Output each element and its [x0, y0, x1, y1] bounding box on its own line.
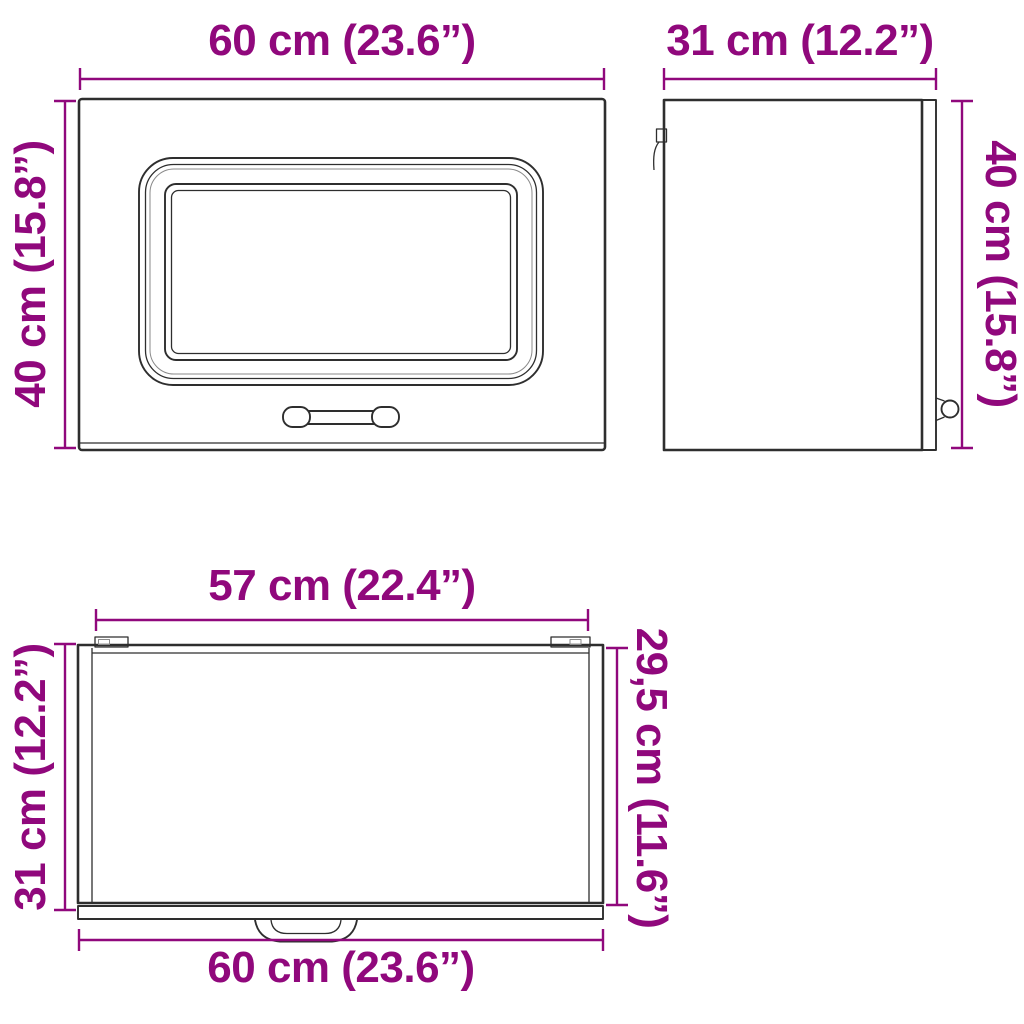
front-view [79, 99, 605, 450]
top-inner-width-label: 57 cm (22.4”) [208, 564, 475, 608]
side-door-panel [922, 100, 936, 450]
diagram-line-art [0, 0, 1024, 1024]
front-height-dimension-line [54, 101, 76, 448]
side-height-label: 40 cm (15.8”) [978, 140, 1022, 407]
front-door-frame-line [146, 165, 537, 379]
top-cabinet-walls [92, 648, 589, 903]
side-hinge-arm [654, 142, 659, 170]
front-door-frame-bevel [150, 169, 532, 374]
side-width-dimension-line [664, 68, 936, 90]
side-view [654, 100, 959, 450]
side-handle-knob [942, 401, 959, 418]
dimension-lines [54, 68, 973, 951]
top-width-label: 60 cm (23.6”) [207, 946, 474, 990]
front-width-label: 60 cm (23.6”) [208, 19, 475, 63]
front-height-label: 40 cm (15.8”) [9, 140, 53, 407]
front-handle-left-knob [283, 407, 310, 427]
side-height-dimension-line [951, 101, 973, 448]
front-handle-bar [301, 411, 381, 424]
top-door-panel [78, 906, 603, 919]
side-cabinet-outline [664, 100, 922, 450]
front-handle-right-knob [372, 407, 399, 427]
top-depth-dimension-line [54, 644, 76, 910]
top-handle-outline [255, 920, 357, 942]
top-inner-width-dimension-line [96, 609, 588, 631]
front-glass-frame [165, 184, 517, 360]
front-glass-panel [172, 191, 511, 354]
top-depth-label: 31 cm (12.2”) [9, 643, 53, 910]
front-handle [283, 407, 399, 427]
side-width-label: 31 cm (12.2”) [666, 19, 933, 63]
top-inner-depth-dimension-line [606, 648, 628, 905]
front-cabinet-outline [79, 99, 605, 450]
cabinet-dimension-diagram: 60 cm (23.6”) 40 cm (15.8”) 31 cm (12.2”… [0, 0, 1024, 1024]
top-cabinet-outline [78, 645, 603, 903]
top-inner-depth-label: 29,5 cm (11.6”) [629, 628, 673, 929]
front-width-dimension-line [80, 68, 604, 90]
front-door-frame-outer [139, 158, 543, 385]
top-view [78, 637, 603, 942]
top-handle-recess [271, 920, 341, 934]
